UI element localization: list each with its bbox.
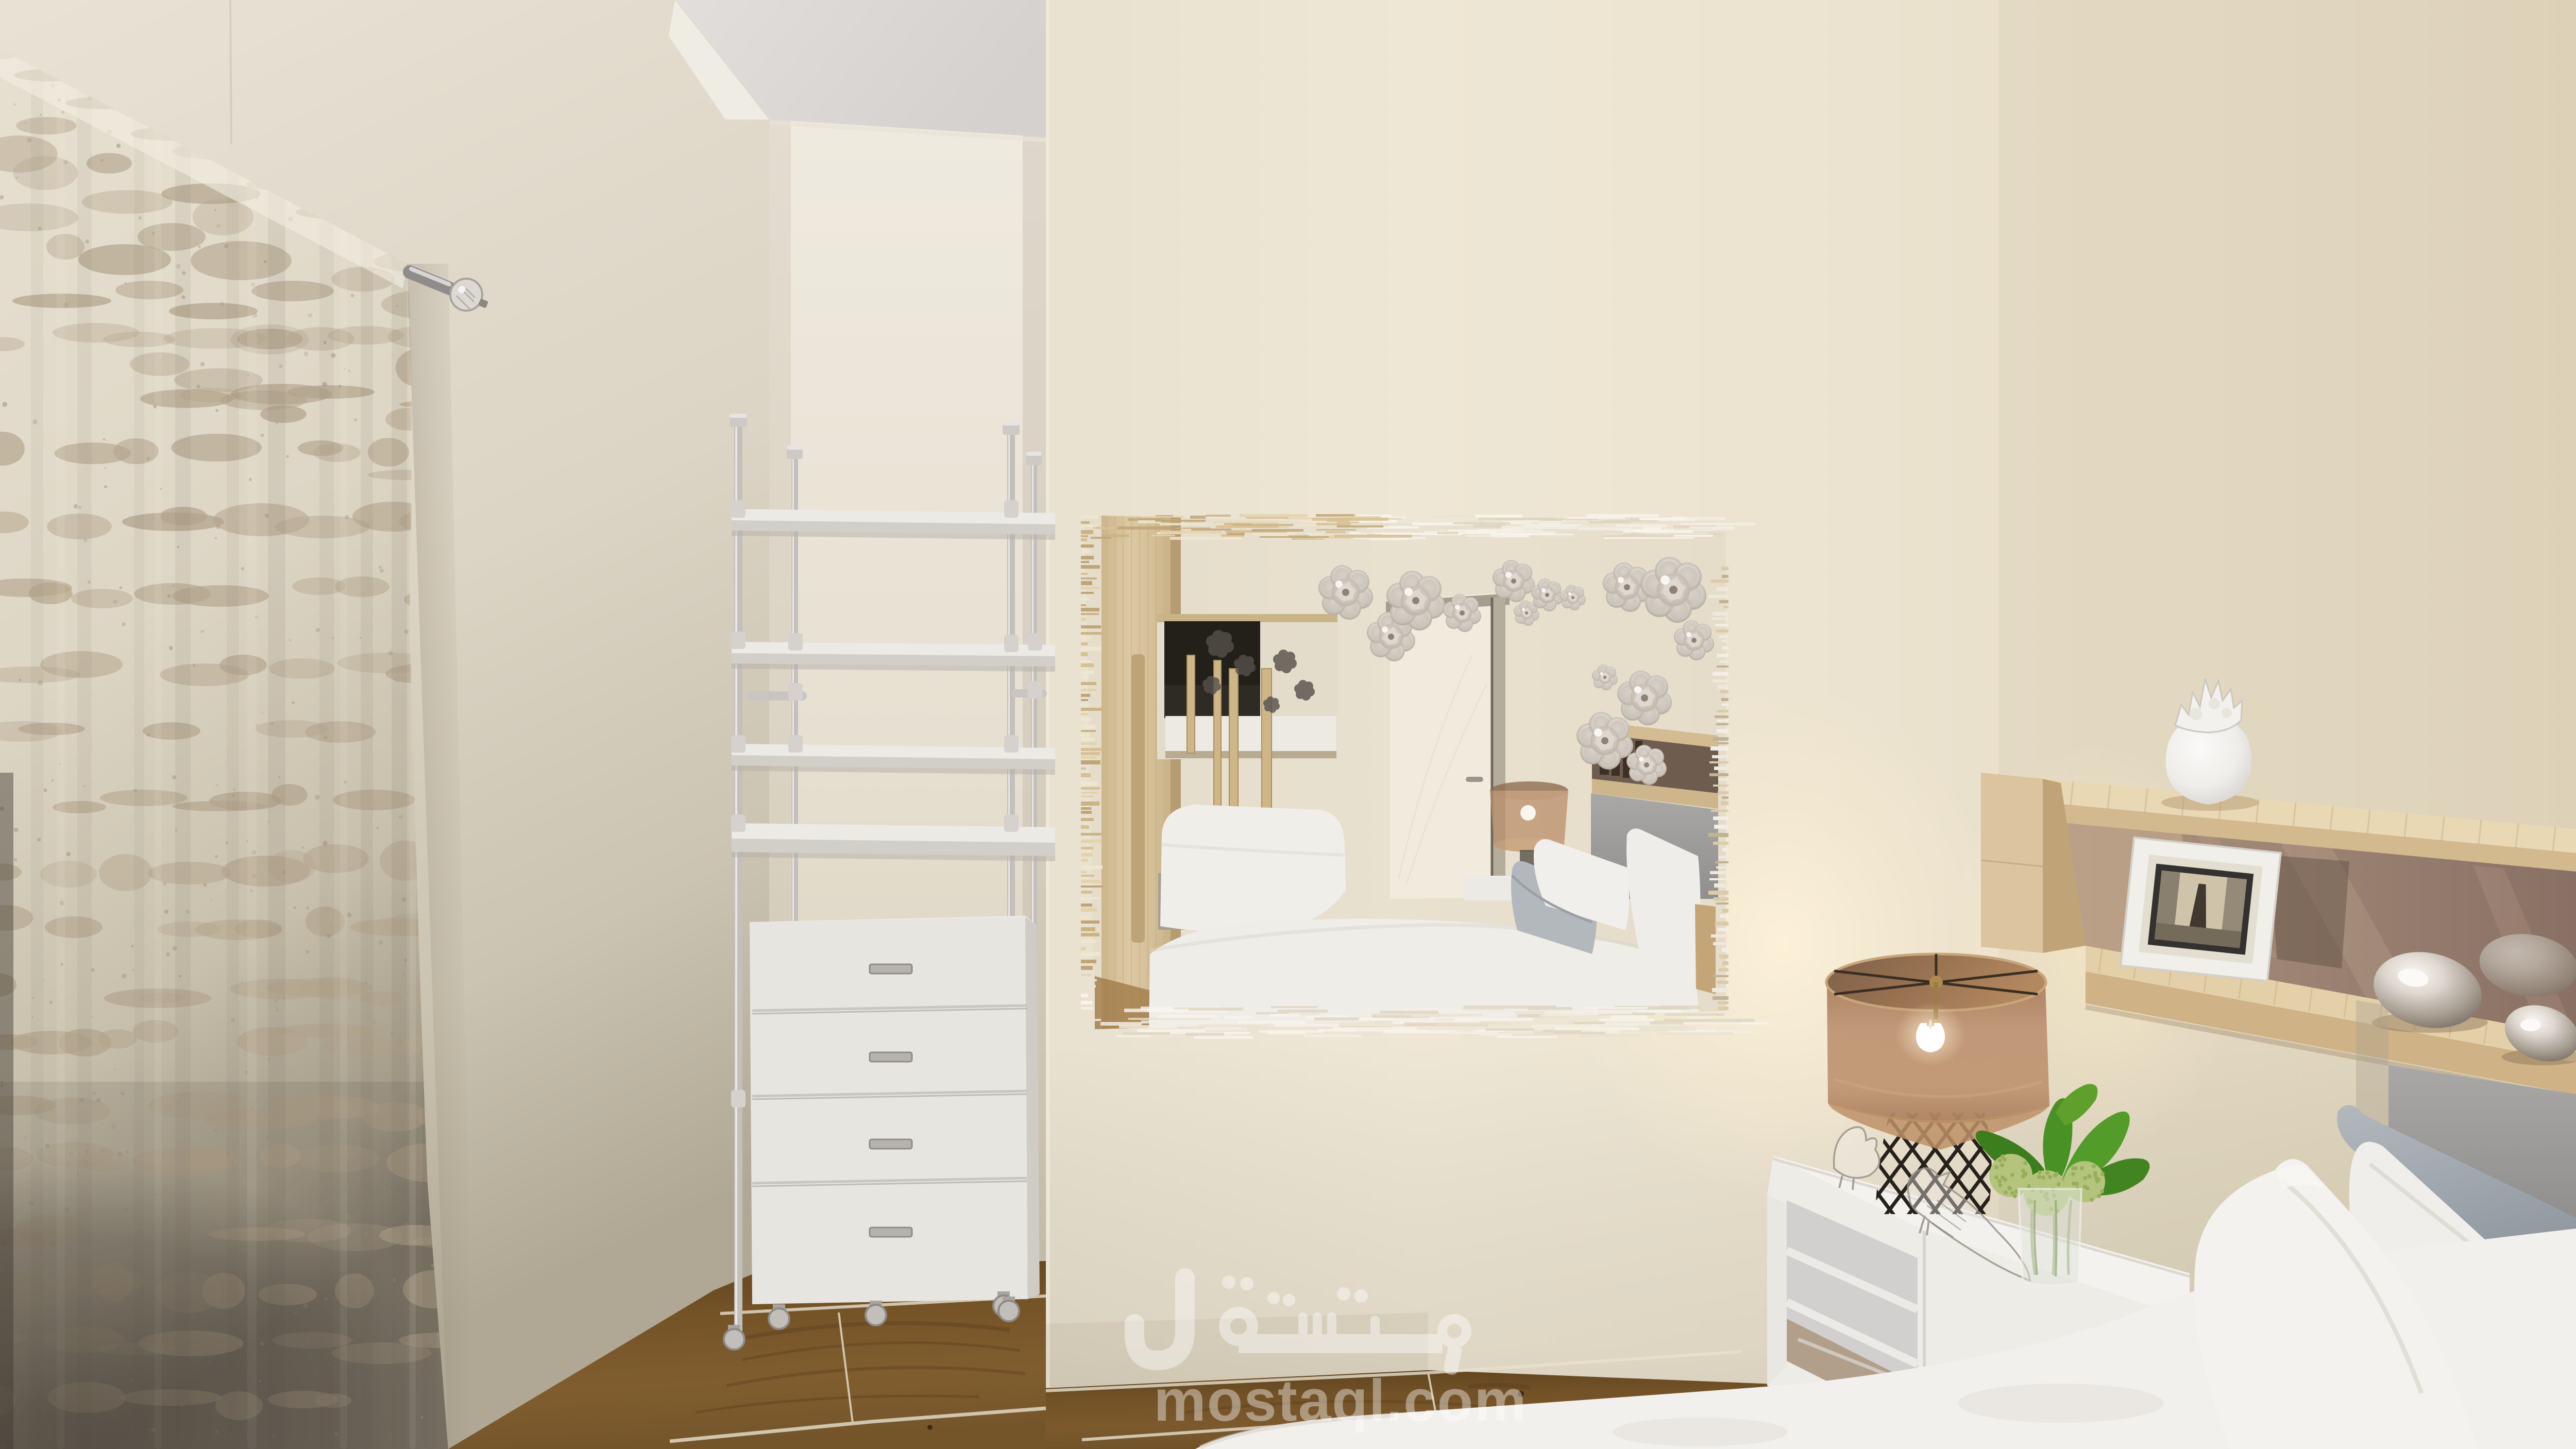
svg-text:mostaql.com: mostaql.com xyxy=(1154,1368,1527,1434)
